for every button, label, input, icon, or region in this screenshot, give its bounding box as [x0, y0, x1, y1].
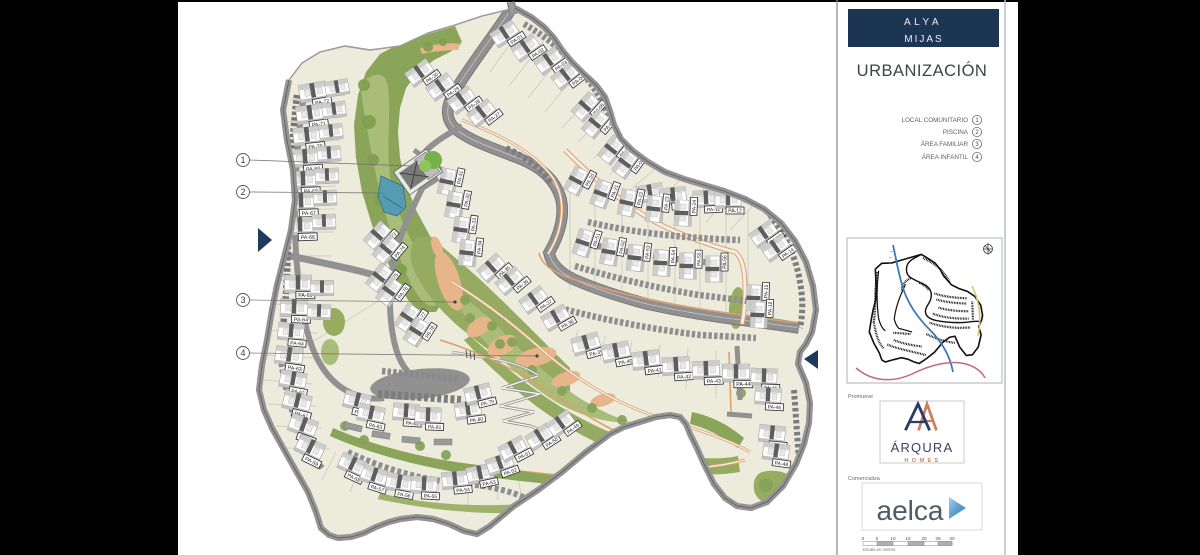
svg-text:MIJAS: MIJAS	[904, 34, 943, 45]
svg-text:PA-46: PA-46	[767, 405, 781, 412]
svg-text:URBANIZACIÓN: URBANIZACIÓN	[857, 61, 988, 80]
svg-text:PA-64: PA-64	[290, 340, 304, 347]
svg-text:ÁREA FAMILIAR: ÁREA FAMILIAR	[921, 139, 969, 148]
svg-text:PA-43: PA-43	[707, 379, 721, 385]
svg-text:PA-54: PA-54	[671, 249, 678, 263]
svg-text:PA-55: PA-55	[423, 494, 437, 501]
svg-text:ALYA: ALYA	[904, 17, 942, 28]
svg-text:HOMES: HOMES	[904, 458, 941, 464]
svg-text:0: 0	[862, 536, 865, 542]
svg-text:PA-24: PA-24	[692, 199, 698, 213]
svg-text:PA-56: PA-56	[723, 255, 729, 269]
svg-text:10: 10	[890, 536, 896, 542]
svg-text:Promueve: Promueve	[848, 394, 873, 400]
svg-text:PA-44: PA-44	[736, 382, 750, 388]
svg-text:4: 4	[240, 348, 245, 358]
svg-text:PA-12: PA-12	[728, 209, 742, 215]
svg-text:15: 15	[905, 536, 911, 542]
svg-text:PISCINA: PISCINA	[943, 129, 969, 136]
svg-text:ÁREA INFANTIL: ÁREA INFANTIL	[922, 152, 969, 161]
svg-text:PA-55: PA-55	[697, 252, 703, 266]
svg-text:PA-64: PA-64	[294, 317, 308, 323]
svg-text:Comercializa: Comercializa	[848, 476, 881, 482]
svg-text:LOCAL COMUNITARIO: LOCAL COMUNITARIO	[902, 117, 969, 124]
svg-text:3: 3	[240, 295, 245, 305]
svg-text:aelca: aelca	[877, 495, 944, 526]
svg-text:20: 20	[921, 536, 927, 542]
svg-text:Escala en metros: Escala en metros	[863, 547, 895, 552]
svg-text:25: 25	[935, 536, 941, 542]
svg-text:PA-18: PA-18	[768, 301, 774, 315]
svg-text:5: 5	[876, 536, 879, 542]
svg-text:PA-42: PA-42	[677, 374, 692, 381]
svg-text:PA-66: PA-66	[301, 235, 315, 241]
svg-text:ÁRQURA: ÁRQURA	[891, 440, 954, 455]
svg-text:2: 2	[240, 187, 245, 197]
svg-text:30: 30	[949, 536, 955, 542]
svg-text:PA-81: PA-81	[428, 425, 442, 431]
svg-text:PA-15: PA-15	[764, 284, 770, 298]
svg-text:1: 1	[240, 155, 245, 165]
